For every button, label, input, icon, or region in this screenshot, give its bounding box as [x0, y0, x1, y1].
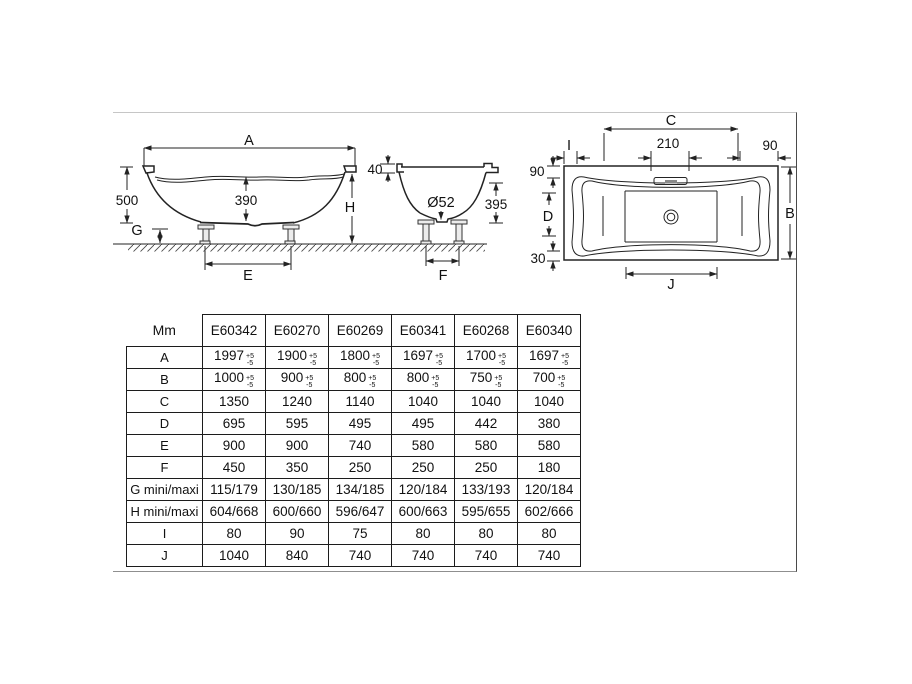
section-view-drawing: 40 Ø52 395 F	[367, 155, 507, 284]
value-cell: 1140	[329, 391, 392, 413]
side-right-wall	[293, 172, 345, 223]
value-cell: 900	[203, 435, 266, 457]
product-code-cell: E60342	[203, 315, 266, 347]
tolerance-value: +5-5	[368, 376, 376, 389]
section-right-rim	[484, 164, 498, 173]
table-row: I809075808080	[127, 523, 581, 545]
row-label-cell: A	[127, 347, 203, 369]
row-label-cell: B	[127, 369, 203, 391]
row-label-cell: J	[127, 545, 203, 567]
corner-left-label: I	[567, 138, 571, 154]
value-cell: 1350	[203, 391, 266, 413]
table-row: A1997+5-51900+5-51800+5-51697+5-51700+5-…	[127, 347, 581, 369]
section-left-rim	[397, 164, 404, 172]
water-depth-label: 390	[235, 193, 258, 208]
water-line-2	[157, 177, 343, 182]
side-feet	[198, 225, 299, 244]
row-label-cell: C	[127, 391, 203, 413]
value-cell: 350	[266, 457, 329, 479]
value-cell: 80	[518, 523, 581, 545]
drain-diameter-label: Ø52	[427, 195, 454, 211]
value-cell: 580	[392, 435, 455, 457]
row-label-cell: E	[127, 435, 203, 457]
dimension-table: MmE60342E60270E60269E60341E60268E60340A1…	[126, 314, 581, 567]
tolerance-value: +5-5	[431, 376, 439, 389]
value-cell: 80	[392, 523, 455, 545]
ground-line	[113, 244, 487, 252]
side-length-label: A	[244, 133, 254, 149]
value-cell: 580	[518, 435, 581, 457]
value-cell: 595	[266, 413, 329, 435]
section-feet	[418, 220, 467, 244]
bathtub-spec-sheet: A 500 390 H G	[0, 0, 912, 684]
tolerance-value: +5-5	[309, 354, 317, 367]
value-cell: 1900+5-5	[266, 347, 329, 369]
drain-hole	[664, 210, 678, 224]
row-label-cell: D	[127, 413, 203, 435]
product-code-cell: E60269	[329, 315, 392, 347]
section-right-wall	[463, 173, 486, 214]
value-cell: 1040	[518, 391, 581, 413]
basin-length-label: J	[667, 277, 674, 293]
technical-drawing: A 500 390 H G	[0, 0, 912, 340]
value-cell: 250	[392, 457, 455, 479]
feet-spacing-label: E	[243, 268, 253, 284]
product-code-cell: E60270	[266, 315, 329, 347]
rim-width-left-label: 90	[529, 164, 544, 179]
drain-hole-inner	[667, 213, 675, 221]
value-cell: 900	[266, 435, 329, 457]
rim-width-bottom-label: 30	[530, 251, 545, 266]
unit-header-cell: Mm	[127, 315, 203, 347]
value-cell: 900+5-5	[266, 369, 329, 391]
tolerance-value: +5-5	[246, 376, 254, 389]
value-cell: 740	[329, 545, 392, 567]
value-cell: 800+5-5	[392, 369, 455, 391]
value-cell: 1040	[455, 391, 518, 413]
table-row: B1000+5-5900+5-5800+5-5800+5-5750+5-5700…	[127, 369, 581, 391]
value-cell: 740	[518, 545, 581, 567]
value-cell: 700+5-5	[518, 369, 581, 391]
value-cell: 750+5-5	[455, 369, 518, 391]
value-cell: 595/655	[455, 501, 518, 523]
value-cell: 75	[329, 523, 392, 545]
product-code-cell: E60341	[392, 315, 455, 347]
value-cell: 1240	[266, 391, 329, 413]
section-left-wall	[399, 172, 420, 213]
value-cell: 604/668	[203, 501, 266, 523]
basin-width-label: D	[543, 209, 553, 225]
value-cell: 180	[518, 457, 581, 479]
value-cell: 602/666	[518, 501, 581, 523]
rim-length-label: C	[666, 113, 676, 129]
value-cell: 450	[203, 457, 266, 479]
value-cell: 134/185	[329, 479, 392, 501]
foot-height-label: G	[131, 223, 142, 239]
value-cell: 1040	[392, 391, 455, 413]
row-label-cell: H mini/maxi	[127, 501, 203, 523]
product-code-cell: E60340	[518, 315, 581, 347]
table-row: E900900740580580580	[127, 435, 581, 457]
value-cell: 115/179	[203, 479, 266, 501]
overflow-width-label: 210	[657, 136, 680, 151]
overall-width-label: B	[785, 206, 795, 222]
value-cell: 1997+5-5	[203, 347, 266, 369]
value-cell: 250	[455, 457, 518, 479]
value-cell: 120/184	[518, 479, 581, 501]
tolerance-value: +5-5	[305, 376, 313, 389]
value-cell: 133/193	[455, 479, 518, 501]
height-to-floor-label: H	[345, 200, 355, 216]
value-cell: 600/663	[392, 501, 455, 523]
side-view-drawing: A 500 390 H G	[116, 133, 356, 284]
value-cell: 495	[392, 413, 455, 435]
value-cell: 120/184	[392, 479, 455, 501]
inner-depth-label: 395	[485, 197, 508, 212]
value-cell: 130/185	[266, 479, 329, 501]
value-cell: 380	[518, 413, 581, 435]
tolerance-value: +5-5	[557, 376, 565, 389]
table-row: G mini/maxi115/179130/185134/185120/1841…	[127, 479, 581, 501]
side-right-rim	[344, 166, 356, 172]
side-total-height-label: 500	[116, 193, 139, 208]
value-cell: 1700+5-5	[455, 347, 518, 369]
table-row: D695595495495442380	[127, 413, 581, 435]
value-cell: 800+5-5	[329, 369, 392, 391]
plan-view-drawing: C 210 I 90 90 D	[529, 113, 796, 293]
value-cell: 90	[266, 523, 329, 545]
value-cell: 740	[455, 545, 518, 567]
value-cell: 596/647	[329, 501, 392, 523]
tolerance-value: +5-5	[498, 354, 506, 367]
side-left-rim	[143, 166, 154, 173]
row-label-cell: G mini/maxi	[127, 479, 203, 501]
dimension-table-wrapper: MmE60342E60270E60269E60341E60268E60340A1…	[126, 314, 581, 567]
value-cell: 695	[203, 413, 266, 435]
rim-width-right-label: 90	[762, 138, 777, 153]
value-cell: 250	[329, 457, 392, 479]
value-cell: 495	[329, 413, 392, 435]
section-feet-spacing-label: F	[439, 268, 448, 284]
value-cell: 1697+5-5	[392, 347, 455, 369]
value-cell: 80	[203, 523, 266, 545]
table-row: H mini/maxi604/668600/660596/647600/6635…	[127, 501, 581, 523]
value-cell: 740	[392, 545, 455, 567]
table-row: C135012401140104010401040	[127, 391, 581, 413]
row-label-cell: I	[127, 523, 203, 545]
value-cell: 840	[266, 545, 329, 567]
value-cell: 1040	[203, 545, 266, 567]
ground-hatching	[128, 245, 485, 252]
value-cell: 442	[455, 413, 518, 435]
value-cell: 1697+5-5	[518, 347, 581, 369]
value-cell: 600/660	[266, 501, 329, 523]
tolerance-value: +5-5	[435, 354, 443, 367]
row-label-cell: F	[127, 457, 203, 479]
value-cell: 1800+5-5	[329, 347, 392, 369]
product-code-cell: E60268	[455, 315, 518, 347]
table-row: F450350250250250180	[127, 457, 581, 479]
rim-thickness-label: 40	[367, 162, 382, 177]
value-cell: 80	[455, 523, 518, 545]
tolerance-value: +5-5	[494, 376, 502, 389]
table-header-row: MmE60342E60270E60269E60341E60268E60340	[127, 315, 581, 347]
tolerance-value: +5-5	[246, 354, 254, 367]
tolerance-value: +5-5	[561, 354, 569, 367]
tolerance-value: +5-5	[372, 354, 380, 367]
overflow-slot-inner	[665, 180, 677, 184]
value-cell: 1000+5-5	[203, 369, 266, 391]
side-left-wall	[147, 173, 201, 222]
water-line	[155, 174, 344, 179]
value-cell: 580	[455, 435, 518, 457]
table-row: J1040840740740740740	[127, 545, 581, 567]
value-cell: 740	[329, 435, 392, 457]
